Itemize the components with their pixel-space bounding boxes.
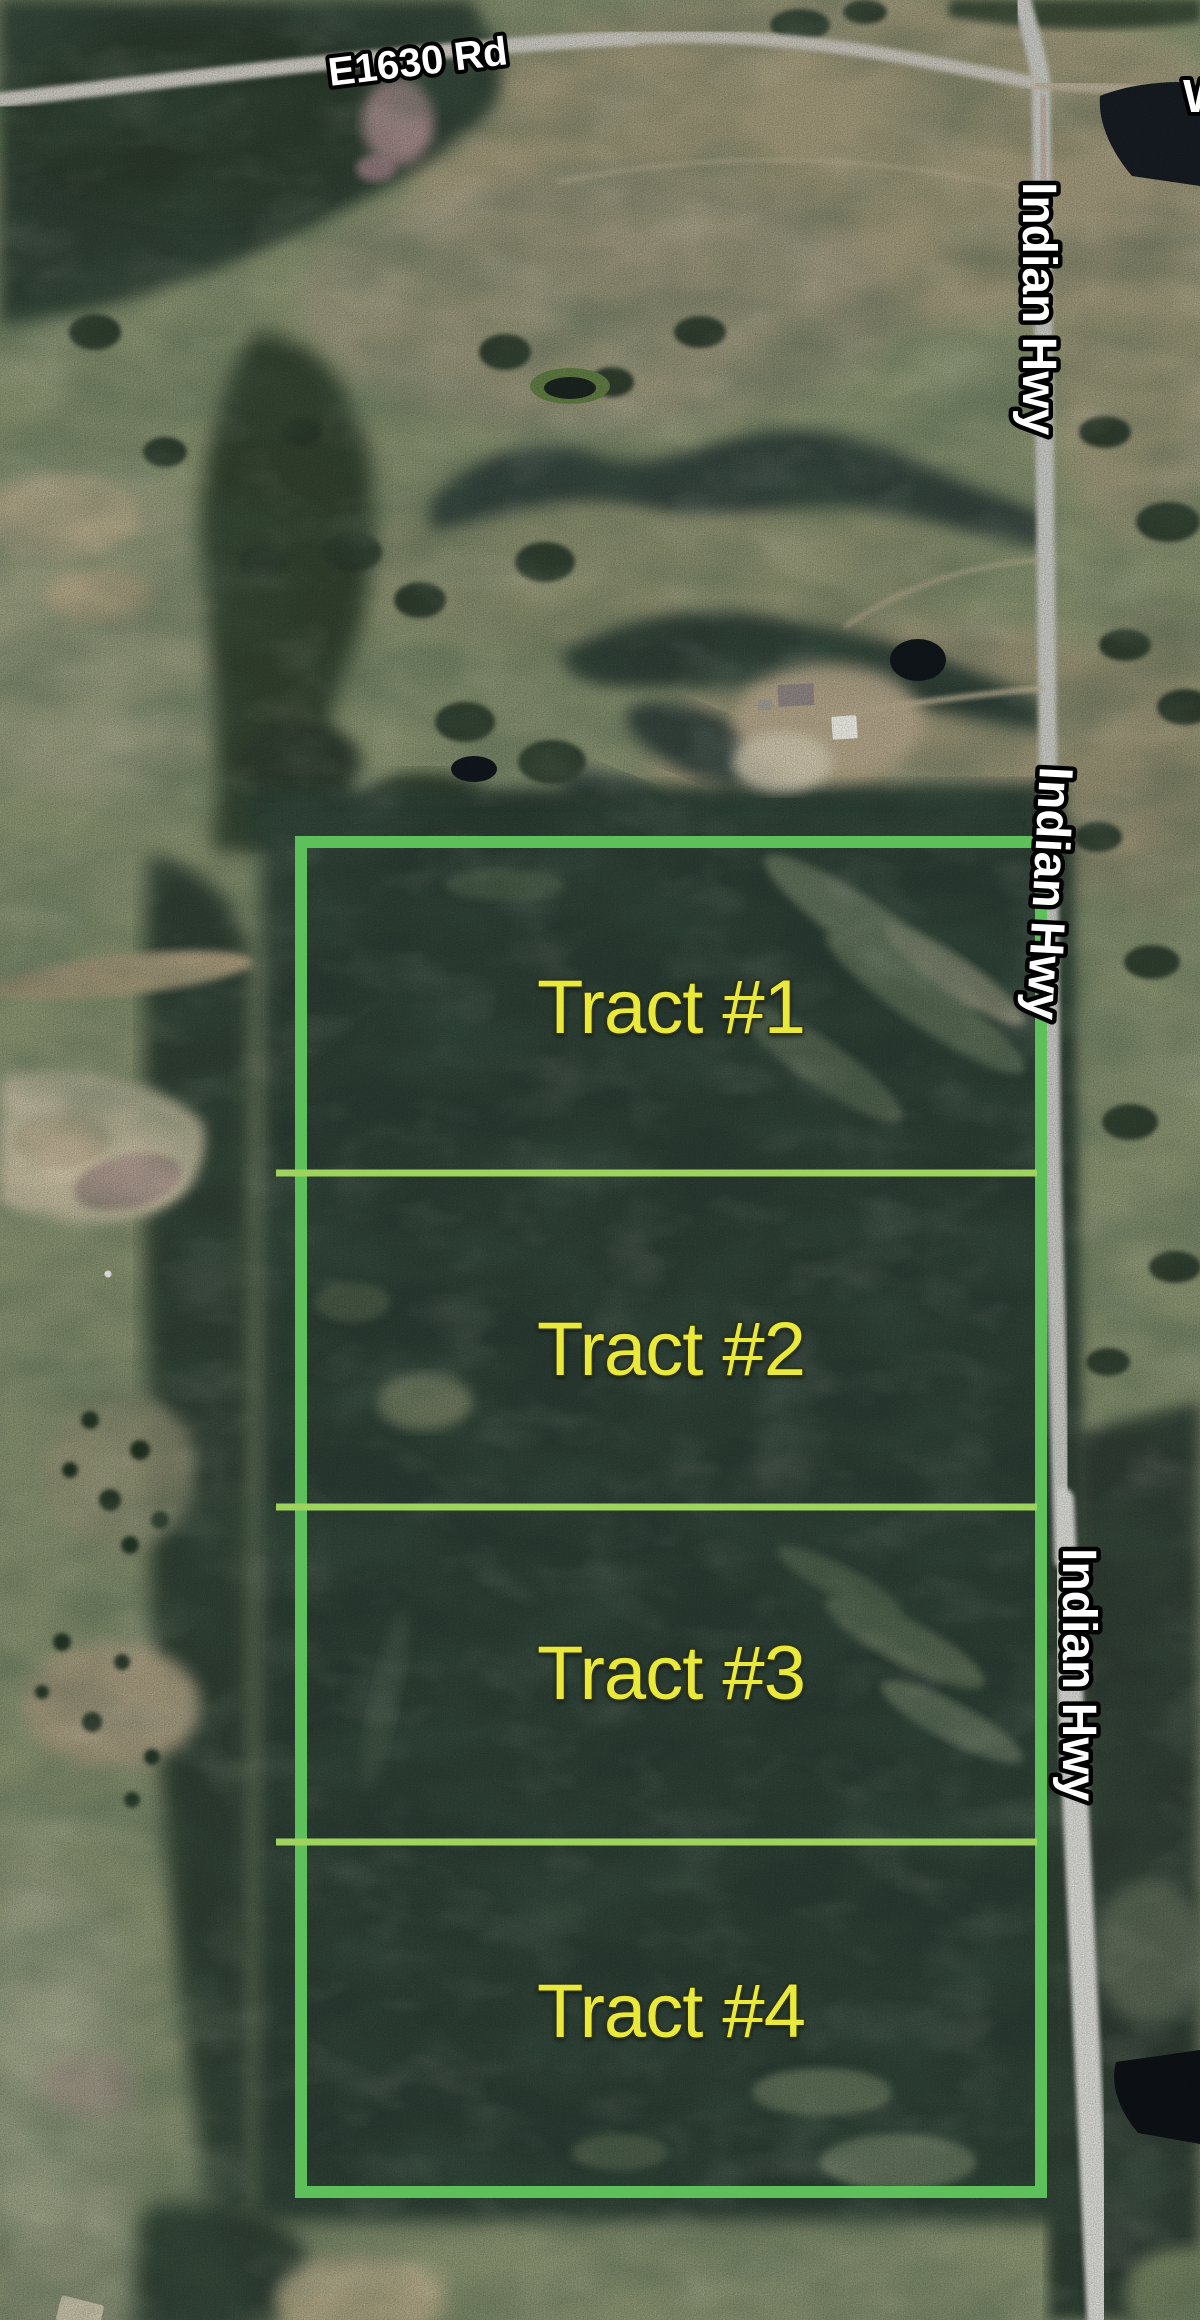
tract-2-label: Tract #2 <box>537 1307 805 1392</box>
satellite-image: E1630 Rd Indian Hwy Indian Hwy Indian Hw… <box>0 0 1200 2320</box>
edge-partial-letter: W <box>1183 70 1200 122</box>
road-label-indian-hwy-3: Indian Hwy <box>1052 1548 1105 1802</box>
road-label-indian-hwy-1: Indian Hwy <box>1012 182 1065 436</box>
aerial-plat-map: E1630 Rd Indian Hwy Indian Hwy Indian Hw… <box>0 0 1200 2320</box>
tract-4-label: Tract #4 <box>537 1969 805 2054</box>
tract-1-label: Tract #1 <box>537 965 805 1050</box>
tract-3-label: Tract #3 <box>537 1631 805 1716</box>
